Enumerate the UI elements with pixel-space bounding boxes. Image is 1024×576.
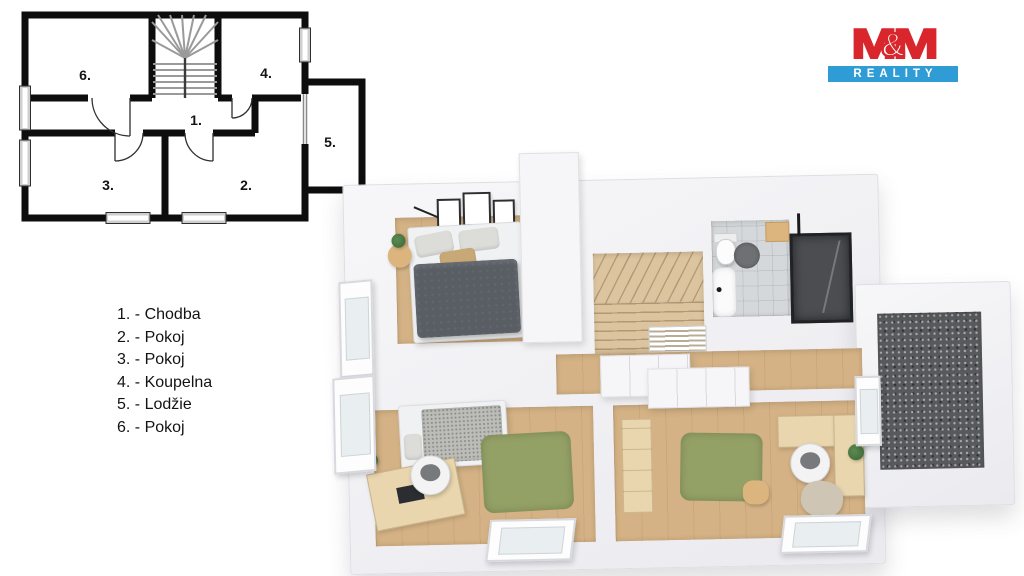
stair-railing: [648, 325, 707, 352]
legend-item: 5. - Lodžie: [117, 394, 212, 417]
floor-balcony: [877, 312, 984, 470]
logo-ampersand: &: [881, 26, 905, 64]
legend-item: 6. - Pokoj: [117, 417, 212, 440]
double-bed: [407, 221, 527, 343]
staircase-2d: [152, 15, 218, 98]
bookshelf-room2: [621, 419, 653, 514]
picture-frame: [462, 192, 491, 227]
stool: [743, 480, 769, 505]
floorplan-2d: 6. 4. 1. 5. 3. 2.: [12, 8, 368, 232]
bath-faucet: [717, 287, 722, 292]
toilet: [716, 239, 737, 265]
shower-enclosure: [789, 232, 853, 323]
real-estate-floorplan-sheet: 6. 4. 1. 5. 3. 2. 1. - Chodba 2. - Pokoj…: [0, 0, 1024, 576]
room-numbers: 6. 4. 1. 5. 3. 2.: [79, 65, 336, 193]
window-room2-bottom: [779, 514, 872, 554]
vanity: [765, 222, 789, 242]
legend: 1. - Chodba 2. - Pokoj 3. - Pokoj 4. - K…: [117, 304, 212, 439]
duvet: [413, 259, 521, 339]
door-bathroom: [232, 98, 252, 118]
legend-item: 2. - Pokoj: [117, 327, 212, 350]
legend-item: 4. - Koupelna: [117, 372, 212, 395]
label-room2: 2.: [240, 177, 252, 193]
label-loggia: 5.: [324, 134, 336, 150]
legend-item: 3. - Pokoj: [117, 349, 212, 372]
window-room3-left: [332, 375, 376, 475]
logo-reality-bar: REALITY: [828, 66, 958, 82]
pillow: [403, 433, 422, 460]
rug-room3: [480, 431, 574, 514]
floorplan-3d: [328, 135, 1024, 576]
window-room3-bottom: [485, 518, 576, 562]
door-room3: [115, 133, 143, 161]
staircase-3d-upper: [593, 251, 704, 303]
label-bathroom: 4.: [260, 65, 272, 81]
bathtub: [712, 267, 737, 317]
mm-reality-logo: M & M REALITY: [828, 22, 958, 82]
label-hallway: 1.: [190, 112, 202, 128]
shower-pole: [797, 213, 800, 235]
balcony-door: [854, 376, 881, 447]
label-room3: 3.: [102, 177, 114, 193]
logo-mm: M & M: [828, 22, 958, 66]
window-bedroom-left: [338, 279, 374, 378]
interior-walls: [25, 15, 305, 218]
wall-column: [519, 152, 583, 343]
label-room6: 6.: [79, 67, 91, 83]
legend-item: 1. - Chodba: [117, 304, 212, 327]
room2-wardrobe: [647, 366, 750, 408]
door-room2: [185, 133, 213, 161]
